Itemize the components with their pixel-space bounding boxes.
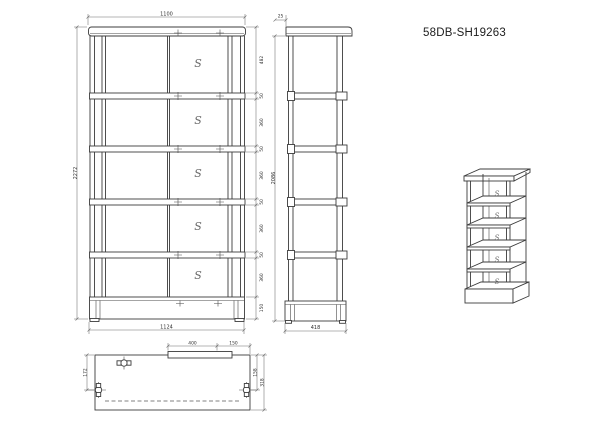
- dim-plan-rail-offset: 150: [229, 341, 238, 347]
- side-structure: [285, 27, 352, 323]
- dim-chain-5: 360: [259, 171, 265, 180]
- dim-chain-3: 360: [259, 118, 265, 127]
- plan-structure: [87, 352, 256, 411]
- front-s-mark-1: S: [194, 57, 202, 70]
- part-number: 58DB-SH19263: [423, 27, 506, 39]
- dim-chain-8: 50: [259, 252, 265, 258]
- iso-s-mark-5: S: [495, 278, 500, 286]
- dim-front-width-top: 1100: [160, 12, 173, 18]
- front-s-mark-3: S: [194, 167, 202, 180]
- dim-chain-9: 360: [259, 273, 265, 282]
- iso-view: S S S S S: [464, 169, 530, 303]
- front-s-marks: S S S S S: [194, 57, 202, 282]
- iso-s-mark-3: S: [495, 234, 500, 242]
- front-s-mark-2: S: [194, 114, 202, 127]
- dim-side-height: 2086: [271, 172, 277, 185]
- front-s-mark-4: S: [194, 220, 202, 233]
- dim-side-top-offset: 25: [278, 14, 284, 20]
- dim-front-height: 2272: [73, 167, 79, 180]
- drawing-canvas: S S S S S 1100 1124 2272: [0, 0, 600, 423]
- dim-side-depth: 418: [311, 325, 321, 331]
- dim-chain-4: 50: [259, 146, 265, 152]
- iso-s-mark-4: S: [495, 256, 500, 264]
- front-s-mark-5: S: [194, 269, 202, 282]
- dim-plan-left-offset: 172: [83, 368, 89, 377]
- plan-view: 400 150 172 158 318: [83, 341, 268, 412]
- dim-front-width-bottom: 1124: [160, 325, 173, 331]
- dim-plan-rail-width: 400: [188, 341, 197, 347]
- dim-chain-1: 482: [259, 56, 265, 65]
- iso-s-mark-2: S: [495, 212, 500, 220]
- dim-chain-10: 150: [259, 304, 265, 313]
- side-view: 2086 25 418: [271, 14, 352, 335]
- dim-plan-right-inner: 158: [253, 368, 259, 377]
- dim-chain-6: 50: [259, 199, 265, 205]
- front-structure: [89, 27, 246, 322]
- iso-s-mark-1: S: [495, 190, 500, 198]
- front-view: S S S S S 1100 1124 2272: [73, 12, 265, 335]
- technical-drawing: S S S S S 1100 1124 2272: [0, 0, 600, 423]
- dim-plan-right-outer: 318: [260, 378, 266, 387]
- dim-chain-7: 360: [259, 224, 265, 233]
- side-dimensions: 2086 25 418: [271, 14, 348, 335]
- dim-chain-2: 50: [259, 93, 265, 99]
